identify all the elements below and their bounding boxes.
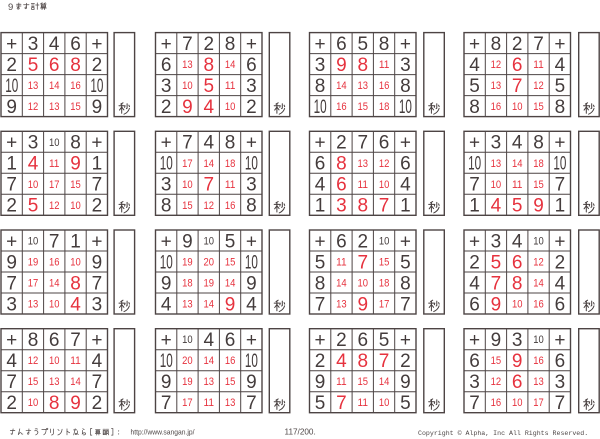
svg-text:9: 9 bbox=[161, 372, 172, 393]
svg-text:3: 3 bbox=[161, 175, 172, 196]
svg-text:8: 8 bbox=[469, 97, 480, 118]
svg-text:5: 5 bbox=[491, 252, 502, 273]
svg-text:6: 6 bbox=[555, 294, 566, 315]
svg-text:18: 18 bbox=[379, 278, 390, 290]
svg-text:16: 16 bbox=[336, 101, 347, 113]
svg-text:8: 8 bbox=[70, 133, 81, 154]
svg-text:6: 6 bbox=[379, 133, 390, 154]
svg-text:5: 5 bbox=[512, 196, 523, 217]
svg-text:8: 8 bbox=[512, 273, 523, 294]
svg-text:+: + bbox=[161, 330, 172, 351]
svg-text:18: 18 bbox=[533, 158, 544, 170]
svg-text:16: 16 bbox=[70, 80, 81, 92]
svg-text:1: 1 bbox=[92, 154, 103, 175]
svg-text:3: 3 bbox=[469, 372, 480, 393]
svg-text:15: 15 bbox=[182, 200, 193, 212]
svg-text:10: 10 bbox=[160, 154, 173, 175]
svg-text:10: 10 bbox=[512, 101, 523, 113]
svg-text:8: 8 bbox=[28, 330, 39, 351]
svg-text:6: 6 bbox=[70, 34, 81, 55]
svg-text:10: 10 bbox=[512, 397, 523, 409]
svg-text:7: 7 bbox=[70, 330, 81, 351]
svg-text:6: 6 bbox=[512, 55, 523, 76]
svg-text:+: + bbox=[554, 34, 565, 55]
svg-text:9: 9 bbox=[182, 231, 193, 252]
svg-text:12: 12 bbox=[491, 59, 502, 71]
svg-text:7: 7 bbox=[379, 351, 390, 372]
svg-text:7: 7 bbox=[555, 393, 566, 414]
svg-text:8: 8 bbox=[315, 76, 326, 97]
svg-text:7: 7 bbox=[92, 372, 103, 393]
svg-text:8: 8 bbox=[204, 55, 215, 76]
svg-text:2: 2 bbox=[204, 34, 215, 55]
svg-text:10: 10 bbox=[28, 397, 39, 409]
svg-text:10: 10 bbox=[379, 236, 390, 248]
svg-text:8: 8 bbox=[358, 196, 369, 217]
svg-text:5: 5 bbox=[315, 393, 326, 414]
svg-text:6: 6 bbox=[225, 330, 236, 351]
svg-text:7: 7 bbox=[161, 393, 172, 414]
svg-text:9: 9 bbox=[533, 196, 544, 217]
svg-text:10: 10 bbox=[225, 101, 236, 113]
svg-text:10: 10 bbox=[182, 80, 193, 92]
svg-text:12: 12 bbox=[204, 200, 215, 212]
svg-text:+: + bbox=[469, 34, 480, 55]
svg-text:19: 19 bbox=[182, 376, 193, 388]
svg-text:10: 10 bbox=[28, 179, 39, 191]
svg-text:+: + bbox=[246, 231, 257, 252]
svg-text:18: 18 bbox=[225, 158, 236, 170]
svg-text:8: 8 bbox=[400, 273, 411, 294]
svg-text:4: 4 bbox=[204, 97, 215, 118]
svg-text:+: + bbox=[91, 133, 102, 154]
svg-text:4: 4 bbox=[161, 294, 172, 315]
svg-text:10: 10 bbox=[399, 97, 412, 118]
svg-text:3: 3 bbox=[555, 372, 566, 393]
svg-text:11: 11 bbox=[358, 397, 369, 409]
svg-text:5: 5 bbox=[379, 330, 390, 351]
svg-text:2: 2 bbox=[92, 393, 103, 414]
svg-text:9: 9 bbox=[8, 2, 13, 13]
svg-text:6: 6 bbox=[358, 330, 369, 351]
svg-text:8: 8 bbox=[358, 351, 369, 372]
svg-text:16: 16 bbox=[225, 200, 236, 212]
svg-text:6: 6 bbox=[336, 231, 347, 252]
svg-text:11: 11 bbox=[204, 397, 215, 409]
svg-text:9: 9 bbox=[92, 252, 103, 273]
svg-text:12: 12 bbox=[49, 200, 60, 212]
svg-text:6: 6 bbox=[161, 55, 172, 76]
svg-text:10: 10 bbox=[160, 351, 173, 372]
svg-text:7: 7 bbox=[491, 273, 502, 294]
svg-text:10: 10 bbox=[70, 257, 81, 269]
svg-text:+: + bbox=[315, 330, 326, 351]
svg-text:5: 5 bbox=[204, 76, 215, 97]
svg-text:6: 6 bbox=[315, 154, 326, 175]
svg-text:8: 8 bbox=[336, 154, 347, 175]
svg-text:6: 6 bbox=[469, 294, 480, 315]
svg-text:18: 18 bbox=[182, 278, 193, 290]
svg-text:2: 2 bbox=[6, 55, 17, 76]
svg-text:9: 9 bbox=[6, 252, 17, 273]
svg-text:+: + bbox=[469, 231, 480, 252]
svg-text:+: + bbox=[554, 330, 565, 351]
svg-text:14: 14 bbox=[204, 158, 215, 170]
svg-text:13: 13 bbox=[28, 80, 39, 92]
svg-text:3: 3 bbox=[6, 294, 17, 315]
svg-text:5: 5 bbox=[555, 76, 566, 97]
svg-text:10: 10 bbox=[533, 334, 544, 346]
svg-text:9: 9 bbox=[336, 55, 347, 76]
svg-text:5: 5 bbox=[225, 231, 236, 252]
svg-text:3: 3 bbox=[491, 133, 502, 154]
svg-text:8: 8 bbox=[225, 133, 236, 154]
svg-text:5: 5 bbox=[28, 55, 39, 76]
svg-text:10: 10 bbox=[49, 299, 60, 311]
svg-text:6: 6 bbox=[336, 34, 347, 55]
svg-text:12: 12 bbox=[533, 257, 544, 269]
svg-text:13: 13 bbox=[49, 101, 60, 113]
svg-text:+: + bbox=[6, 231, 17, 252]
svg-text:6: 6 bbox=[512, 252, 523, 273]
svg-text:8: 8 bbox=[70, 273, 81, 294]
svg-text:14: 14 bbox=[70, 376, 81, 388]
svg-text:15: 15 bbox=[358, 101, 369, 113]
svg-text:3: 3 bbox=[512, 330, 523, 351]
svg-text:+: + bbox=[315, 231, 326, 252]
svg-text:+: + bbox=[91, 231, 102, 252]
svg-text:13: 13 bbox=[358, 158, 369, 170]
svg-text:19: 19 bbox=[182, 257, 193, 269]
svg-text:http://www.sangan.jp/: http://www.sangan.jp/ bbox=[131, 428, 196, 437]
svg-text:4: 4 bbox=[315, 175, 326, 196]
svg-text:10: 10 bbox=[512, 299, 523, 311]
svg-text:4: 4 bbox=[512, 133, 523, 154]
svg-text:+: + bbox=[6, 34, 17, 55]
svg-text:15: 15 bbox=[533, 101, 544, 113]
svg-text:10: 10 bbox=[491, 179, 502, 191]
svg-text:4: 4 bbox=[28, 154, 39, 175]
svg-text:3: 3 bbox=[92, 294, 103, 315]
svg-text:11: 11 bbox=[379, 59, 390, 71]
svg-text:10: 10 bbox=[379, 179, 390, 191]
svg-text:9: 9 bbox=[512, 351, 523, 372]
svg-text:11: 11 bbox=[512, 179, 523, 191]
svg-text:10: 10 bbox=[182, 334, 193, 346]
svg-text:8: 8 bbox=[225, 34, 236, 55]
svg-text:17: 17 bbox=[182, 397, 193, 409]
svg-text:15: 15 bbox=[225, 257, 236, 269]
svg-text:14: 14 bbox=[204, 299, 215, 311]
svg-text:1: 1 bbox=[70, 231, 81, 252]
svg-text:14: 14 bbox=[336, 80, 347, 92]
svg-text:7: 7 bbox=[469, 175, 480, 196]
svg-text:10: 10 bbox=[314, 97, 327, 118]
svg-text:+: + bbox=[91, 330, 102, 351]
svg-text:+: + bbox=[6, 133, 17, 154]
svg-text:+: + bbox=[161, 133, 172, 154]
svg-text:5: 5 bbox=[400, 252, 411, 273]
svg-text:2: 2 bbox=[92, 196, 103, 217]
svg-text:9: 9 bbox=[92, 97, 103, 118]
svg-text:11: 11 bbox=[70, 355, 81, 367]
svg-text:4: 4 bbox=[555, 55, 566, 76]
svg-text:10: 10 bbox=[182, 179, 193, 191]
svg-text:8: 8 bbox=[246, 196, 257, 217]
svg-text:15: 15 bbox=[70, 101, 81, 113]
svg-text:3: 3 bbox=[336, 196, 347, 217]
svg-text:Copyright © Alpha, Inc All Rig: Copyright © Alpha, Inc All Rights Reserv… bbox=[418, 429, 588, 437]
svg-text:10: 10 bbox=[245, 154, 258, 175]
svg-text:8: 8 bbox=[533, 133, 544, 154]
svg-text:4: 4 bbox=[204, 330, 215, 351]
svg-text:6: 6 bbox=[49, 330, 60, 351]
svg-text:10: 10 bbox=[379, 397, 390, 409]
svg-text:19: 19 bbox=[204, 278, 215, 290]
svg-text:8: 8 bbox=[161, 196, 172, 217]
svg-text:3: 3 bbox=[246, 76, 257, 97]
svg-text:5: 5 bbox=[400, 393, 411, 414]
svg-text:17: 17 bbox=[533, 397, 544, 409]
svg-text:9: 9 bbox=[70, 393, 81, 414]
svg-text:4: 4 bbox=[469, 273, 480, 294]
svg-text:17: 17 bbox=[182, 158, 193, 170]
svg-text:4: 4 bbox=[336, 351, 347, 372]
svg-text:10: 10 bbox=[28, 236, 39, 248]
svg-text:+: + bbox=[469, 133, 480, 154]
svg-text:17: 17 bbox=[379, 299, 390, 311]
svg-text:4: 4 bbox=[400, 175, 411, 196]
svg-text:16: 16 bbox=[533, 299, 544, 311]
svg-text:12: 12 bbox=[379, 158, 390, 170]
svg-text:4: 4 bbox=[70, 294, 81, 315]
svg-text:3: 3 bbox=[161, 76, 172, 97]
svg-text:8: 8 bbox=[49, 393, 60, 414]
svg-text:+: + bbox=[246, 330, 257, 351]
svg-text:1: 1 bbox=[315, 196, 326, 217]
svg-text:15: 15 bbox=[28, 376, 39, 388]
svg-text:+: + bbox=[469, 330, 480, 351]
svg-text:10: 10 bbox=[468, 154, 481, 175]
svg-text:1: 1 bbox=[400, 196, 411, 217]
svg-text:15: 15 bbox=[533, 179, 544, 191]
svg-text:13: 13 bbox=[182, 299, 193, 311]
svg-text:+: + bbox=[400, 34, 411, 55]
svg-text:2: 2 bbox=[6, 196, 17, 217]
svg-text:10: 10 bbox=[245, 252, 258, 273]
svg-text:10: 10 bbox=[358, 278, 369, 290]
svg-text:+: + bbox=[554, 231, 565, 252]
svg-text:7: 7 bbox=[182, 133, 193, 154]
svg-text:3: 3 bbox=[491, 231, 502, 252]
svg-text:14: 14 bbox=[533, 278, 544, 290]
svg-text:20: 20 bbox=[204, 257, 215, 269]
svg-text:15: 15 bbox=[225, 376, 236, 388]
svg-text:13: 13 bbox=[533, 376, 544, 388]
svg-text:16: 16 bbox=[225, 355, 236, 367]
svg-text:11: 11 bbox=[336, 376, 347, 388]
svg-text:6: 6 bbox=[512, 372, 523, 393]
svg-text:9: 9 bbox=[358, 294, 369, 315]
svg-text:15: 15 bbox=[379, 257, 390, 269]
svg-text:14: 14 bbox=[512, 158, 523, 170]
svg-text:11: 11 bbox=[225, 80, 236, 92]
svg-text:9: 9 bbox=[491, 330, 502, 351]
svg-text:2: 2 bbox=[246, 97, 257, 118]
svg-text:10: 10 bbox=[5, 76, 18, 97]
svg-text:8: 8 bbox=[358, 55, 369, 76]
svg-text:+: + bbox=[554, 133, 565, 154]
svg-text:11: 11 bbox=[336, 257, 347, 269]
svg-text:7: 7 bbox=[92, 273, 103, 294]
svg-text:+: + bbox=[246, 133, 257, 154]
svg-text:6: 6 bbox=[49, 55, 60, 76]
svg-text:+: + bbox=[246, 34, 257, 55]
svg-text:2: 2 bbox=[400, 351, 411, 372]
svg-text:9: 9 bbox=[182, 97, 193, 118]
svg-text:4: 4 bbox=[246, 294, 257, 315]
svg-text:10: 10 bbox=[533, 236, 544, 248]
svg-text:13: 13 bbox=[28, 299, 39, 311]
svg-text:4: 4 bbox=[512, 231, 523, 252]
svg-text:7: 7 bbox=[469, 393, 480, 414]
svg-text:14: 14 bbox=[49, 80, 60, 92]
svg-text:13: 13 bbox=[491, 158, 502, 170]
svg-text:14: 14 bbox=[204, 355, 215, 367]
svg-text:15: 15 bbox=[491, 355, 502, 367]
svg-text:16: 16 bbox=[49, 257, 60, 269]
svg-text:4: 4 bbox=[49, 34, 60, 55]
svg-text:7: 7 bbox=[358, 252, 369, 273]
svg-text:2: 2 bbox=[512, 34, 523, 55]
svg-text:7: 7 bbox=[533, 34, 544, 55]
svg-text:12: 12 bbox=[28, 355, 39, 367]
svg-text:7: 7 bbox=[92, 175, 103, 196]
svg-text:+: + bbox=[315, 133, 326, 154]
svg-text:11: 11 bbox=[533, 59, 544, 71]
svg-text:16: 16 bbox=[379, 80, 390, 92]
svg-text:14: 14 bbox=[49, 278, 60, 290]
svg-text:15: 15 bbox=[358, 376, 369, 388]
svg-text:+: + bbox=[315, 34, 326, 55]
svg-text:13: 13 bbox=[182, 59, 193, 71]
svg-text:19: 19 bbox=[28, 257, 39, 269]
svg-text:4: 4 bbox=[6, 351, 17, 372]
svg-text:9: 9 bbox=[161, 273, 172, 294]
svg-text:9: 9 bbox=[246, 273, 257, 294]
svg-text:8: 8 bbox=[315, 273, 326, 294]
svg-text:20: 20 bbox=[182, 355, 193, 367]
svg-text:10: 10 bbox=[204, 236, 215, 248]
svg-text:14: 14 bbox=[225, 59, 236, 71]
svg-text:7: 7 bbox=[512, 76, 523, 97]
svg-text:10: 10 bbox=[49, 137, 60, 149]
svg-text:5: 5 bbox=[315, 252, 326, 273]
svg-text:3: 3 bbox=[28, 133, 39, 154]
svg-text:2: 2 bbox=[336, 330, 347, 351]
svg-text:+: + bbox=[400, 133, 411, 154]
svg-text:13: 13 bbox=[204, 376, 215, 388]
svg-text:10: 10 bbox=[245, 351, 258, 372]
svg-text:3: 3 bbox=[400, 55, 411, 76]
svg-text:8: 8 bbox=[400, 76, 411, 97]
svg-text:8: 8 bbox=[491, 34, 502, 55]
svg-text:3: 3 bbox=[246, 175, 257, 196]
svg-text:8: 8 bbox=[379, 34, 390, 55]
svg-text:16: 16 bbox=[491, 101, 502, 113]
svg-text:+: + bbox=[91, 34, 102, 55]
svg-text:5: 5 bbox=[28, 196, 39, 217]
svg-text:2: 2 bbox=[92, 55, 103, 76]
svg-text:14: 14 bbox=[225, 278, 236, 290]
svg-text:8: 8 bbox=[70, 55, 81, 76]
svg-text:7: 7 bbox=[246, 393, 257, 414]
svg-text:2: 2 bbox=[358, 231, 369, 252]
svg-text:18: 18 bbox=[379, 101, 390, 113]
svg-text:9: 9 bbox=[491, 294, 502, 315]
svg-text:9: 9 bbox=[6, 97, 17, 118]
svg-text:9: 9 bbox=[400, 372, 411, 393]
svg-text:14: 14 bbox=[336, 278, 347, 290]
svg-text:4: 4 bbox=[491, 196, 502, 217]
svg-text:14: 14 bbox=[379, 376, 390, 388]
svg-text:1: 1 bbox=[6, 154, 17, 175]
svg-text:7: 7 bbox=[400, 294, 411, 315]
svg-text:7: 7 bbox=[315, 294, 326, 315]
svg-text:10: 10 bbox=[70, 200, 81, 212]
svg-text:6: 6 bbox=[400, 154, 411, 175]
svg-text:2: 2 bbox=[469, 252, 480, 273]
svg-text:9: 9 bbox=[225, 294, 236, 315]
svg-text:2: 2 bbox=[6, 393, 17, 414]
svg-text:6: 6 bbox=[555, 351, 566, 372]
svg-text:7: 7 bbox=[6, 175, 17, 196]
svg-text:3: 3 bbox=[315, 55, 326, 76]
svg-text:4: 4 bbox=[555, 273, 566, 294]
svg-text:7: 7 bbox=[379, 196, 390, 217]
svg-text:+: + bbox=[161, 34, 172, 55]
svg-text:15: 15 bbox=[70, 179, 81, 191]
svg-text:17: 17 bbox=[49, 179, 60, 191]
svg-text:8: 8 bbox=[555, 97, 566, 118]
svg-text:4: 4 bbox=[204, 133, 215, 154]
svg-text:7: 7 bbox=[49, 231, 60, 252]
svg-text:6: 6 bbox=[246, 55, 257, 76]
svg-text:17: 17 bbox=[28, 278, 39, 290]
svg-text:9: 9 bbox=[70, 154, 81, 175]
svg-text:13: 13 bbox=[336, 299, 347, 311]
svg-text:1: 1 bbox=[469, 196, 480, 217]
svg-text:1: 1 bbox=[555, 196, 566, 217]
svg-text:7: 7 bbox=[336, 393, 347, 414]
svg-text:6: 6 bbox=[336, 175, 347, 196]
svg-text:13: 13 bbox=[491, 80, 502, 92]
svg-text:+: + bbox=[400, 330, 411, 351]
svg-text:5: 5 bbox=[469, 76, 480, 97]
svg-text:16: 16 bbox=[533, 355, 544, 367]
svg-text:10: 10 bbox=[49, 355, 60, 367]
svg-text:11: 11 bbox=[49, 158, 60, 170]
svg-text:3: 3 bbox=[28, 34, 39, 55]
svg-text:2: 2 bbox=[161, 97, 172, 118]
svg-text:10: 10 bbox=[90, 76, 103, 97]
svg-text:4: 4 bbox=[92, 351, 103, 372]
svg-text:10: 10 bbox=[553, 154, 566, 175]
svg-text:+: + bbox=[6, 330, 17, 351]
svg-text:16: 16 bbox=[491, 397, 502, 409]
svg-text:12: 12 bbox=[491, 376, 502, 388]
svg-text:+: + bbox=[161, 231, 172, 252]
